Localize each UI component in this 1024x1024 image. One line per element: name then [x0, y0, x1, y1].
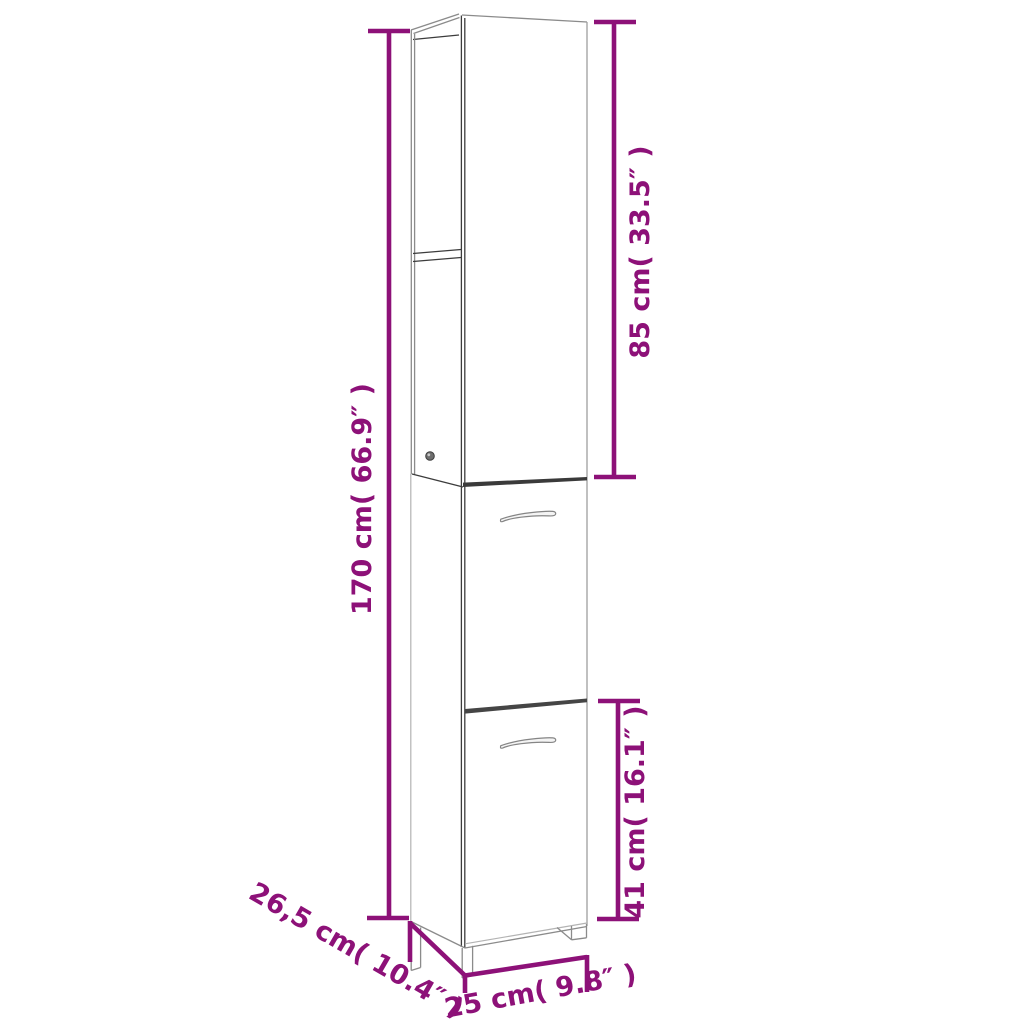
dimension-label-lower-section: 41 cm( 16.1″ ) [620, 705, 651, 918]
shelf-line [413, 250, 461, 254]
dimension-label-height-total: 170 cm( 66.9″ ) [347, 383, 378, 615]
cabinet-drawing [411, 14, 587, 978]
cabinet-open-shelves [413, 250, 461, 262]
cabinet-door-divider [465, 699, 587, 714]
dimension-label-depth: 26,5 cm( 10.4″ ) [244, 877, 469, 1024]
door-handle [500, 738, 555, 748]
lower-door [500, 738, 555, 748]
cabinet-mid-divider [412, 474, 587, 487]
dimension-lower-section: 41 cm( 16.1″ ) [597, 701, 651, 919]
cabinet-bottom-edges [412, 922, 587, 948]
dimension-diagram: 170 cm( 66.9″ ) 85 cm( 33.5″ ) 41 cm( 16… [0, 0, 1024, 1024]
shelf-line [413, 258, 461, 262]
knob [426, 452, 435, 461]
dimension-label-upper-section: 85 cm( 33.5″ ) [625, 145, 656, 358]
dimension-width: 25 cm( 9.8″ ) [442, 955, 639, 1024]
upper-door [500, 511, 555, 521]
dimension-diagram-canvas: 170 cm( 66.9″ ) 85 cm( 33.5″ ) 41 cm( 16… [0, 0, 1024, 1024]
dimension-height-total: 170 cm( 66.9″ ) [347, 31, 410, 918]
cabinet-leg [557, 924, 587, 940]
dimension-upper-section: 85 cm( 33.5″ ) [594, 22, 656, 477]
door-handle [500, 511, 555, 521]
cabinet-top-edges [411, 14, 587, 40]
dimension-depth: 26,5 cm( 10.4″ ) [244, 877, 469, 1024]
dimension-label-width: 25 cm( 9.8″ ) [442, 959, 639, 1024]
